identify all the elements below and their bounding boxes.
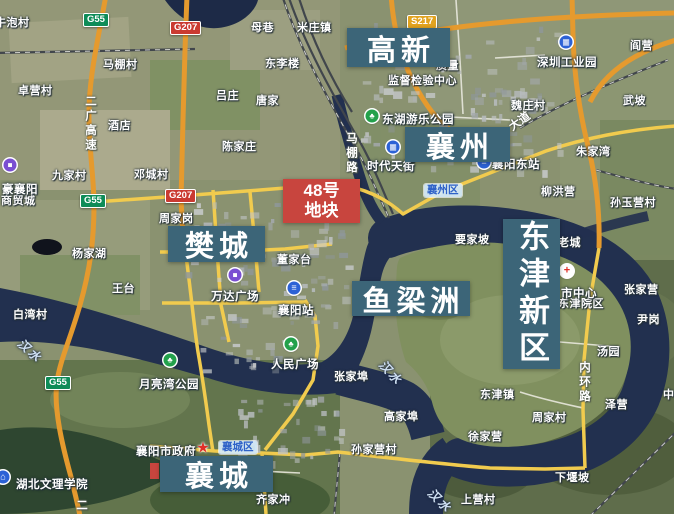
plot-label-line2: 地块 [283, 201, 360, 221]
village-label: 董家台 [277, 254, 312, 266]
satellite-map[interactable]: 牛泡村马棚村卓营村酒店母巷米庄镇东李楼吕庄唐家陈家庄阎营魏庄村武坡朱家湾九家村邓… [0, 0, 674, 514]
village-label: 牛泡村 [0, 17, 30, 29]
road-name-label: 马棚路 [343, 132, 359, 176]
village-label: 阎营 [630, 40, 653, 52]
village-label: 武坡 [623, 95, 646, 107]
village-label: 母巷 [251, 22, 274, 34]
village-label: 王台 [112, 283, 135, 295]
train-icon[interactable]: ≡ [288, 282, 301, 295]
village-label: 周家村 [532, 412, 567, 424]
village-label: 监督检验中心 [388, 75, 457, 87]
village-label: 要家坡 [455, 234, 490, 246]
poi-label[interactable]: 湖北文理学院 [16, 476, 88, 492]
road-name-label: 二广高速 [82, 95, 98, 153]
village-label: 白湾村 [13, 309, 48, 321]
poi-label[interactable]: 人民广场 [271, 356, 319, 372]
industry-icon[interactable]: ▦ [387, 141, 400, 154]
poi-label[interactable]: 市中心 [561, 285, 597, 301]
village-label: 吕庄 [216, 90, 239, 102]
village-label: 东李楼 [265, 58, 300, 70]
village-label: 孙家营村 [351, 444, 397, 456]
district-badge[interactable]: 襄州区 [424, 184, 462, 197]
village-label: 杨家湖 [72, 248, 107, 260]
village-label: 上营村 [461, 494, 496, 506]
village-label: 酒店 [108, 120, 131, 132]
road-name-label: 内环路 [576, 361, 592, 405]
village-label: 米庄镇 [297, 22, 332, 34]
industry-icon[interactable]: ▦ [560, 36, 573, 49]
area-annotation-label: 东津新区 [503, 219, 560, 369]
village-label: 柳洪营 [541, 186, 576, 198]
river-name-label: 汉水 [14, 335, 46, 366]
village-label: 尹岗 [637, 314, 660, 326]
river-name-label: 汉水 [375, 356, 406, 388]
village-label: 汤园 [597, 346, 620, 358]
road-shield-badge: G55 [45, 376, 71, 390]
area-annotation-label: 鱼梁洲 [352, 281, 470, 316]
school-icon[interactable]: ⌂ [0, 471, 10, 484]
mall-icon[interactable]: ■ [229, 269, 242, 282]
hospital-icon[interactable]: + [561, 265, 574, 278]
poi-label[interactable]: 深圳工业园 [537, 54, 597, 70]
area-annotation-label: 高新 [347, 28, 450, 67]
area-annotation-label: 樊城 [168, 226, 265, 262]
road-shield-badge: G207 [170, 21, 201, 35]
area-annotation-label: 襄城 [160, 456, 273, 492]
mall-icon[interactable]: ■ [4, 159, 17, 172]
plot-label-line1: 48号 [283, 181, 360, 201]
area-annotation-label: 襄州 [405, 127, 510, 162]
red-label-fragment [150, 463, 159, 479]
village-label: 卓营村 [18, 85, 53, 97]
village-label: 魏庄村 [511, 100, 546, 112]
poi-label[interactable]: 万达广场 [211, 288, 259, 304]
poi-label[interactable]: 月亮湾公园 [139, 376, 199, 392]
village-label: 孙玉营村 [610, 197, 656, 209]
poi-label[interactable]: 豪襄阳 [2, 181, 38, 197]
village-label: 张家营 [624, 284, 659, 296]
map-labels-layer: 牛泡村马棚村卓营村酒店母巷米庄镇东李楼吕庄唐家陈家庄阎营魏庄村武坡朱家湾九家村邓… [0, 0, 674, 514]
village-label: 高家埠 [384, 411, 419, 423]
village-label: 马棚村 [103, 59, 138, 71]
village-label: 朱家湾 [576, 146, 611, 158]
village-label: 泽营 [605, 399, 628, 411]
road-name-label: 二 [73, 499, 89, 514]
village-label: 徐家营 [468, 431, 503, 443]
road-shield-badge: G207 [165, 189, 196, 203]
park-icon[interactable]: ♣ [164, 354, 177, 367]
village-label: 齐家冲 [256, 494, 291, 506]
park-icon[interactable]: ♣ [366, 110, 379, 123]
village-label: 陈家庄 [222, 141, 257, 153]
village-label: 九家村 [52, 170, 87, 182]
road-shield-badge: G55 [80, 194, 106, 208]
village-label: 老城 [558, 237, 581, 249]
road-shield-badge: G55 [83, 13, 109, 27]
village-label: 下堰坡 [555, 472, 590, 484]
river-name-label: 汉水 [424, 485, 456, 514]
village-label: 东津镇 [480, 389, 515, 401]
village-label: 唐家 [256, 95, 279, 107]
park-icon[interactable]: ♣ [285, 338, 298, 351]
poi-label[interactable]: 襄阳站 [278, 302, 314, 318]
plot-48-annotation-label: 48号地块 [283, 179, 360, 223]
village-label: 邓城村 [134, 169, 169, 181]
village-label: 中 [663, 389, 674, 401]
village-label: 张家埠 [334, 371, 369, 383]
